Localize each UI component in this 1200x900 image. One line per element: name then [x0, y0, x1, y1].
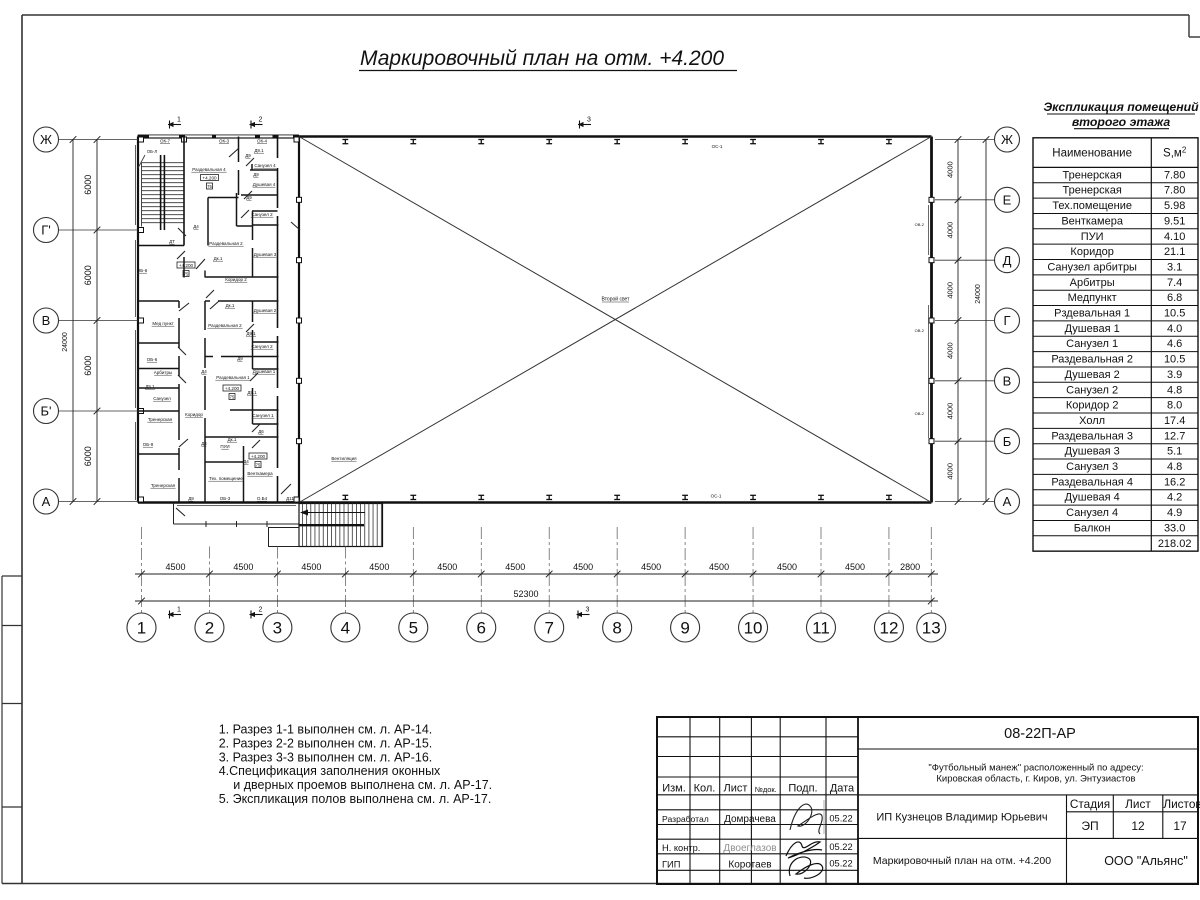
svg-text:Душевая 2: Душевая 2 [254, 308, 277, 313]
svg-text:Коротаев: Коротаев [728, 860, 771, 871]
svg-text:Б': Б' [40, 404, 51, 419]
svg-text:Тренерская: Тренерская [148, 417, 173, 422]
svg-text:ПУИ: ПУИ [220, 444, 229, 449]
svg-text:10.5: 10.5 [1164, 354, 1185, 366]
svg-text:Раздевальная 4: Раздевальная 4 [1051, 476, 1133, 488]
svg-text:О.Б4: О.Б4 [257, 496, 268, 501]
svg-text:Коридор: Коридор [185, 412, 203, 417]
svg-text:Лист: Лист [1125, 797, 1151, 811]
svg-text:4500: 4500 [165, 562, 185, 572]
svg-text:11: 11 [812, 619, 830, 638]
svg-text:ОБ-9: ОБ-9 [143, 442, 154, 447]
svg-text:Санузел 4: Санузел 4 [1066, 507, 1118, 519]
svg-text:В: В [42, 313, 51, 328]
svg-text:1: 1 [177, 606, 181, 613]
svg-text:ОК-3: ОК-3 [219, 139, 230, 144]
svg-text:Д9: Д9 [237, 356, 243, 361]
svg-text:8: 8 [612, 619, 621, 638]
svg-text:52300: 52300 [513, 589, 538, 599]
svg-text:75: 75 [256, 462, 261, 467]
svg-text:4500: 4500 [709, 562, 729, 572]
svg-text:ОК-4: ОК-4 [257, 139, 268, 144]
svg-text:Тех. помещение: Тех. помещение [209, 476, 243, 481]
svg-text:Е: Е [1003, 192, 1012, 207]
svg-text:Вентиляция: Вентиляция [331, 456, 357, 461]
svg-text:А: А [42, 494, 51, 509]
svg-text:4000: 4000 [946, 463, 955, 480]
svg-text:Коридор 2: Коридор 2 [225, 277, 247, 282]
svg-text:4: 4 [341, 619, 350, 638]
svg-text:7.80: 7.80 [1164, 185, 1185, 197]
svg-text:3.9: 3.9 [1167, 369, 1182, 381]
svg-text:218.02: 218.02 [1158, 538, 1192, 550]
svg-text:4500: 4500 [233, 562, 253, 572]
svg-text:ДТ: ДТ [169, 239, 175, 244]
svg-text:75: 75 [230, 394, 235, 399]
svg-text:Тех.помещение: Тех.помещение [1052, 200, 1132, 212]
svg-text:6000: 6000 [83, 446, 93, 466]
svg-text:Д5.1: Д5.1 [145, 384, 155, 389]
svg-text:Кировская область, г. Киров, у: Кировская область, г. Киров, ул. Энтузиа… [936, 774, 1135, 785]
svg-text:+4.200: +4.200 [202, 176, 217, 181]
svg-text:Д9.1: Д9.1 [247, 390, 257, 395]
svg-text:7.80: 7.80 [1164, 169, 1185, 181]
svg-text:Домрачева: Домрачева [724, 814, 776, 825]
svg-text:ОБ-6: ОБ-6 [137, 268, 148, 273]
svg-text:7.4: 7.4 [1167, 277, 1182, 289]
svg-text:4500: 4500 [301, 562, 321, 572]
svg-text:Тренерская: Тренерская [1063, 185, 1122, 197]
svg-text:6.8: 6.8 [1167, 292, 1182, 304]
svg-text:75: 75 [184, 271, 189, 276]
svg-text:4.10: 4.10 [1164, 231, 1185, 243]
svg-text:9: 9 [680, 619, 689, 638]
svg-text:08-22П-АР: 08-22П-АР [1004, 726, 1076, 742]
svg-text:Наименование: Наименование [1052, 148, 1132, 160]
svg-text:Тренерская: Тренерская [1063, 169, 1122, 181]
svg-text:1: 1 [137, 619, 146, 638]
svg-text:Подп.: Подп. [788, 783, 817, 795]
svg-text:+4.200: +4.200 [251, 454, 266, 459]
svg-text:Санузел 2: Санузел 2 [251, 212, 273, 217]
svg-text:1. Разрез 1-1 выполнен см. л.: 1. Разрез 1-1 выполнен см. л. АР-14. [219, 723, 433, 737]
svg-text:Санузел: Санузел [153, 396, 171, 401]
svg-text:Венткамера: Венткамера [247, 471, 273, 476]
svg-text:4500: 4500 [437, 562, 457, 572]
svg-text:4500: 4500 [369, 562, 389, 572]
svg-text:Кол.: Кол. [694, 783, 716, 795]
svg-text:Г': Г' [41, 223, 51, 238]
svg-text:4.9: 4.9 [1167, 507, 1182, 519]
svg-text:2. Разрез 2-2 выполнен см. л.: 2. Разрез 2-2 выполнен см. л. АР-15. [219, 736, 433, 750]
svg-text:второго этажа: второго этажа [1072, 115, 1171, 129]
svg-text:33.0: 33.0 [1164, 522, 1185, 534]
svg-text:Б: Б [1003, 434, 1012, 449]
svg-text:Душевая 1: Душевая 1 [253, 369, 276, 374]
svg-text:05.22: 05.22 [829, 814, 852, 824]
svg-text:4500: 4500 [777, 562, 797, 572]
svg-text:4500: 4500 [845, 562, 865, 572]
svg-text:4000: 4000 [946, 403, 955, 420]
svg-text:Балкон: Балкон [1074, 522, 1111, 534]
svg-text:Изм.: Изм. [662, 783, 686, 795]
svg-text:5: 5 [409, 619, 418, 638]
svg-text:Второй свет: Второй свет [602, 296, 631, 303]
svg-text:Арбитры: Арбитры [1070, 277, 1115, 289]
svg-text:17.4: 17.4 [1164, 415, 1185, 427]
svg-text:Раздевальная 2: Раздевальная 2 [209, 241, 243, 246]
svg-text:Санузел 2: Санузел 2 [251, 344, 273, 349]
svg-text:Санузел 1: Санузел 1 [252, 413, 274, 418]
svg-text:ОВ-2: ОВ-2 [915, 411, 925, 416]
svg-text:4000: 4000 [946, 342, 955, 359]
svg-text:Санузел 3: Санузел 3 [1066, 461, 1118, 473]
svg-text:10: 10 [744, 619, 763, 638]
svg-text:ОБ-3: ОБ-3 [220, 496, 231, 501]
svg-text:ОК-7: ОК-7 [160, 139, 171, 144]
svg-text:Мед пункт: Мед пункт [152, 321, 173, 326]
svg-text:17: 17 [1173, 819, 1187, 833]
svg-text:4.8: 4.8 [1167, 461, 1182, 473]
svg-text:Д6: Д6 [258, 429, 264, 434]
svg-text:2: 2 [259, 116, 263, 123]
svg-text:4000: 4000 [946, 282, 955, 299]
svg-text:Лист: Лист [724, 783, 748, 795]
svg-text:Раздевальная 1: Раздевальная 1 [216, 375, 250, 380]
svg-text:10.5: 10.5 [1164, 308, 1185, 320]
svg-text:4.Спецификация заполнения окон: 4.Спецификация заполнения оконных [219, 764, 441, 778]
svg-text:2800: 2800 [900, 562, 920, 572]
svg-text:Д9.1: Д9.1 [254, 148, 264, 153]
svg-text:Коридор 2: Коридор 2 [1066, 400, 1119, 412]
svg-text:24000: 24000 [975, 284, 982, 304]
svg-text:ГИП: ГИП [662, 860, 680, 870]
svg-text:Арбитры: Арбитры [154, 370, 172, 375]
svg-text:Дк.1: Дк.1 [214, 256, 223, 261]
svg-text:Венткамера: Венткамера [1061, 215, 1124, 227]
svg-text:Д4: Д4 [201, 369, 207, 374]
svg-text:А: А [1003, 494, 1012, 509]
svg-text:05.22: 05.22 [829, 859, 852, 869]
svg-text:Коридор: Коридор [1070, 246, 1113, 258]
svg-text:Экспликация помещений: Экспликация помещений [1043, 100, 1199, 114]
svg-text:ОБ-Л: ОБ-Л [147, 149, 157, 154]
svg-text:Д9: Д9 [253, 172, 259, 177]
svg-text:4.8: 4.8 [1167, 384, 1182, 396]
svg-text:Д9: Д9 [246, 195, 252, 200]
svg-text:12: 12 [1131, 819, 1145, 833]
svg-text:Душевая 3: Душевая 3 [254, 252, 277, 257]
svg-text:Д9: Д9 [188, 496, 194, 501]
svg-text:4.0: 4.0 [1167, 323, 1182, 335]
svg-text:2: 2 [205, 619, 214, 638]
svg-text:Раздевальная 4: Раздевальная 4 [192, 167, 226, 172]
svg-text:ОВ-2: ОВ-2 [915, 328, 925, 333]
svg-text:Раздевальная 2: Раздевальная 2 [1051, 354, 1133, 366]
svg-text:4500: 4500 [505, 562, 525, 572]
svg-text:3.1: 3.1 [1167, 261, 1182, 273]
svg-text:24000: 24000 [62, 332, 69, 352]
svg-text:ОВ-2: ОВ-2 [915, 222, 925, 227]
svg-text:6000: 6000 [83, 265, 93, 285]
svg-text:S,м2: S,м2 [1163, 146, 1187, 160]
svg-text:Медпункт: Медпункт [1068, 292, 1117, 304]
svg-text:Санузел 4: Санузел 4 [254, 163, 276, 168]
svg-text:5. Экспликация полов выполнена: 5. Экспликация полов выполнена см. л. АР… [219, 792, 492, 806]
svg-text:4000: 4000 [946, 161, 955, 178]
svg-text:Раздевальная 2: Раздевальная 2 [208, 323, 242, 328]
svg-text:75: 75 [207, 184, 212, 189]
svg-text:5.98: 5.98 [1164, 200, 1185, 212]
svg-text:1: 1 [177, 116, 181, 123]
svg-text:13: 13 [922, 619, 941, 638]
svg-text:Душевая 2: Душевая 2 [1065, 369, 1120, 381]
svg-text:Душевая 4: Душевая 4 [253, 182, 276, 187]
svg-text:ПУИ: ПУИ [1081, 231, 1104, 243]
svg-text:ОС-1: ОС-1 [712, 144, 723, 149]
svg-text:"Футбольный манеж" расположенн: "Футбольный манеж" расположенный по адре… [928, 763, 1143, 774]
svg-text:16.2: 16.2 [1164, 476, 1185, 488]
svg-text:и дверных проемов выполнена см: и дверных проемов выполнена см. л. АР-17… [233, 778, 492, 792]
svg-text:12: 12 [879, 619, 898, 638]
svg-text:№док.: №док. [755, 785, 777, 794]
svg-text:Д4: Д4 [243, 459, 249, 464]
svg-text:+4.200: +4.200 [225, 386, 240, 391]
svg-text:4.2: 4.2 [1167, 492, 1182, 504]
svg-text:6000: 6000 [83, 175, 93, 195]
svg-text:3: 3 [587, 116, 591, 123]
svg-text:Н. контр.: Н. контр. [662, 843, 700, 853]
svg-text:Разработал: Разработал [662, 814, 709, 824]
svg-text:21.1: 21.1 [1164, 246, 1185, 258]
svg-text:6: 6 [477, 619, 486, 638]
svg-text:Стадия: Стадия [1070, 797, 1110, 811]
svg-text:Маркировочный план на отм. +4.: Маркировочный план на отм. +4.200 [360, 47, 724, 70]
svg-text:+4.200: +4.200 [179, 263, 194, 268]
svg-text:4500: 4500 [641, 562, 661, 572]
svg-text:Двоеглазов: Двоеглазов [723, 843, 776, 854]
svg-text:Ж: Ж [40, 132, 52, 147]
svg-text:Санузел 2: Санузел 2 [1066, 384, 1118, 396]
svg-text:В: В [1003, 373, 1012, 388]
svg-text:7: 7 [544, 619, 553, 638]
svg-text:Д9: Д9 [245, 153, 251, 158]
svg-text:3. Разрез 3-3 выполнен см. л.: 3. Разрез 3-3 выполнен см. л. АР-16. [219, 750, 433, 764]
svg-text:Тренерская: Тренерская [151, 483, 176, 488]
svg-text:4000: 4000 [946, 222, 955, 239]
svg-text:Дк.1: Дк.1 [226, 303, 235, 308]
svg-text:Д4: Д4 [193, 224, 199, 229]
svg-text:Раздевальная 3: Раздевальная 3 [1051, 430, 1133, 442]
svg-text:ООО "Альянс": ООО "Альянс" [1104, 854, 1188, 868]
svg-text:3: 3 [273, 619, 282, 638]
svg-text:3: 3 [586, 606, 590, 613]
svg-text:4500: 4500 [573, 562, 593, 572]
svg-text:2: 2 [259, 606, 263, 613]
svg-text:Дк.1: Дк.1 [228, 437, 237, 442]
svg-text:12.7: 12.7 [1164, 430, 1185, 442]
svg-text:4.6: 4.6 [1167, 338, 1182, 350]
svg-text:5.1: 5.1 [1167, 446, 1182, 458]
svg-text:8.0: 8.0 [1167, 400, 1182, 412]
svg-text:Душевая 3: Душевая 3 [1065, 446, 1120, 458]
svg-text:Д9.1: Д9.1 [246, 331, 256, 336]
svg-text:05.22: 05.22 [829, 842, 852, 852]
svg-text:9.51: 9.51 [1164, 215, 1185, 227]
svg-text:ОБ-6: ОБ-6 [147, 357, 158, 362]
svg-text:Рздевальная 1: Рздевальная 1 [1054, 308, 1130, 320]
svg-text:Д4: Д4 [201, 441, 207, 446]
svg-text:Г: Г [1003, 313, 1010, 328]
svg-text:Санузел 1: Санузел 1 [1066, 338, 1118, 350]
svg-text:Душевая 4: Душевая 4 [1065, 492, 1120, 504]
svg-text:Д11: Д11 [286, 496, 294, 501]
svg-text:Маркировочный план на отм. +4.: Маркировочный план на отм. +4.200 [873, 855, 1051, 867]
svg-text:ИП Кузнецов Владимир Юрьевич: ИП Кузнецов Владимир Юрьевич [876, 812, 1047, 824]
svg-text:Д: Д [1003, 253, 1012, 268]
svg-text:Ж: Ж [1001, 132, 1013, 147]
svg-text:Душевая 1: Душевая 1 [1065, 323, 1120, 335]
svg-text:Холл: Холл [1079, 415, 1105, 427]
svg-text:Дата: Дата [830, 783, 855, 795]
svg-text:Листов: Листов [1163, 797, 1200, 811]
svg-text:ЭП: ЭП [1081, 819, 1098, 833]
svg-text:Санузел арбитры: Санузел арбитры [1047, 261, 1137, 273]
svg-text:6000: 6000 [83, 356, 93, 376]
svg-text:ОС-1: ОС-1 [711, 494, 722, 499]
